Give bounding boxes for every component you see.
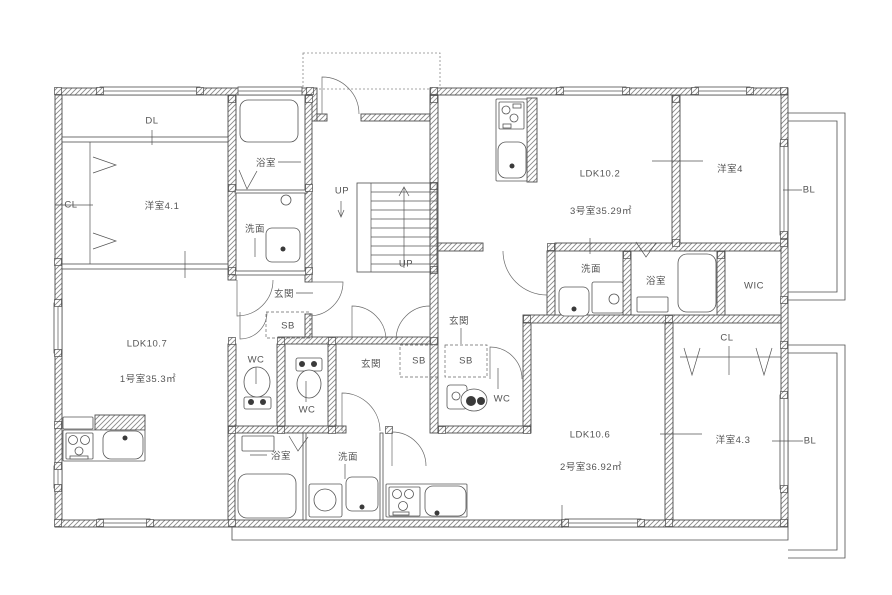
bath-shelf-room2 [242,436,274,451]
post [229,96,236,103]
wall-segment [438,243,483,251]
wall-segment [317,114,327,121]
post [229,427,236,434]
post [55,300,62,307]
post [431,338,438,345]
post [55,88,62,95]
stairs-box [357,183,437,272]
post [147,520,154,527]
faucet-icon [572,307,577,312]
post [197,88,204,95]
door-arc [352,306,386,340]
post [306,185,313,192]
toilet-control [260,399,266,405]
post [548,244,555,251]
door-arc [322,77,359,114]
wall-segment [277,344,285,426]
washbasin-room3 [559,287,589,316]
post [781,88,788,95]
wall-segment [672,95,680,243]
wall-segment [228,433,235,520]
post [781,342,788,349]
post [55,259,62,266]
equipment-circle [281,195,291,205]
toilet-tank-room1 [244,397,271,409]
post [329,338,336,345]
post [431,96,438,103]
post [781,140,788,147]
post [781,520,788,527]
staircase [338,183,437,272]
washer-drum [314,489,336,511]
porch-outline [303,53,440,89]
post [781,297,788,304]
wall-segment [665,323,673,520]
post [673,96,680,103]
wall-segment [228,344,236,426]
partition [380,433,383,520]
wall-segment [328,344,336,426]
wall-segment [438,426,531,433]
post [638,520,645,527]
burner [75,447,83,455]
washbasin-room1 [266,228,300,262]
post [229,520,236,527]
post [278,338,285,345]
burner [502,106,510,114]
post [666,316,673,323]
post [97,88,104,95]
wall-segment [523,315,781,323]
shoe-box [445,345,487,377]
post [562,520,569,527]
wall-segment [527,98,537,182]
toilet-control [299,361,305,367]
post [666,520,673,527]
floor-plan-drawing [0,0,892,595]
toilet-bowl-room1 [244,367,270,397]
closet-door-mark [93,233,116,249]
post [781,392,788,399]
entrance-porch [303,53,440,89]
dimension-lines [55,130,803,528]
partition [62,137,228,142]
wall-segment [55,520,788,527]
wall-segment [717,251,725,317]
post [673,240,680,247]
post [624,252,631,259]
bathtub-room2 [238,474,296,518]
post [278,427,285,434]
door-arc [309,282,343,316]
post [55,463,62,470]
stove-grill-room1 [70,456,88,459]
post [97,520,104,527]
post [329,427,336,434]
faucet-icon [510,164,515,169]
toilet-control [477,397,485,405]
bath-shelf-room3 [637,297,668,312]
faucet-icon [281,247,286,252]
floor-plan-canvas: DLCL洋室4.1浴室洗面玄関SBWCLDK10.71号室35.3㎡UPUP玄関… [0,0,892,595]
post [229,268,236,275]
door-arc [392,432,426,466]
walls [55,88,788,527]
post [747,88,754,95]
kitchen-sink-room2 [425,486,466,516]
post [718,252,725,259]
post [55,350,62,357]
detergent-circle [609,294,619,304]
post [386,427,393,434]
faucet-icon [360,505,365,510]
closet-door-mark [93,157,116,173]
kitchen-sink-room3 [498,142,526,178]
burner [510,114,518,122]
stove-grill-room3 [513,104,521,108]
balcony-bottom [788,353,837,550]
post [55,485,62,492]
post [692,88,699,95]
post [781,232,788,239]
door-arc [237,280,273,316]
toilet-control [466,396,476,406]
toilet-control [248,399,254,405]
partition [232,271,307,275]
post [524,316,531,323]
post [307,88,314,95]
kitchen-shelf-room1 [63,417,93,429]
partition [303,433,306,520]
post [439,427,446,434]
wall-segment [623,251,631,317]
kitchen-sink-room1 [103,431,143,459]
post [229,185,236,192]
post [557,88,564,95]
toilet-bowl-room2 [297,370,321,398]
wall-segment [361,114,430,121]
burner [399,502,408,511]
door-arc [490,347,522,379]
toilet-control [311,361,317,367]
fixtures [63,99,716,518]
balcony-top [788,121,837,292]
post [781,240,788,247]
door-arc [240,312,267,339]
hanger-pipe-mark [756,348,772,375]
post [431,267,438,274]
stove-grill-room3 [503,124,511,128]
folding-door [239,170,257,189]
post [55,422,62,429]
burner [81,436,90,445]
faucet-icon [435,511,440,516]
door-arc [503,251,547,295]
post [431,183,438,190]
burner [405,490,414,499]
hanger-pipe-mark [684,348,700,375]
post [623,88,630,95]
wall-segment [547,251,555,317]
post [306,268,313,275]
bathtub-room3 [678,254,716,312]
balcony-bottom [788,345,845,558]
wall-segment [523,323,531,426]
bathtub-room1 [240,100,298,142]
wall-segment [555,243,781,251]
post [55,520,62,527]
wall-segment [95,415,145,430]
post [229,338,236,345]
drain-circle [452,392,460,400]
stove-grill-room2 [393,512,409,515]
post [306,96,313,103]
burner [69,436,78,445]
burner [393,490,402,499]
faucet-icon [123,436,128,441]
rear-porch-strip [232,527,788,540]
post [431,88,438,95]
balcony-top [788,113,845,300]
post [781,486,788,493]
shoe-box [266,312,310,338]
partition [235,190,307,193]
partition [62,264,228,269]
post [524,427,531,434]
door-arc [342,393,380,431]
door-arc [396,306,430,340]
